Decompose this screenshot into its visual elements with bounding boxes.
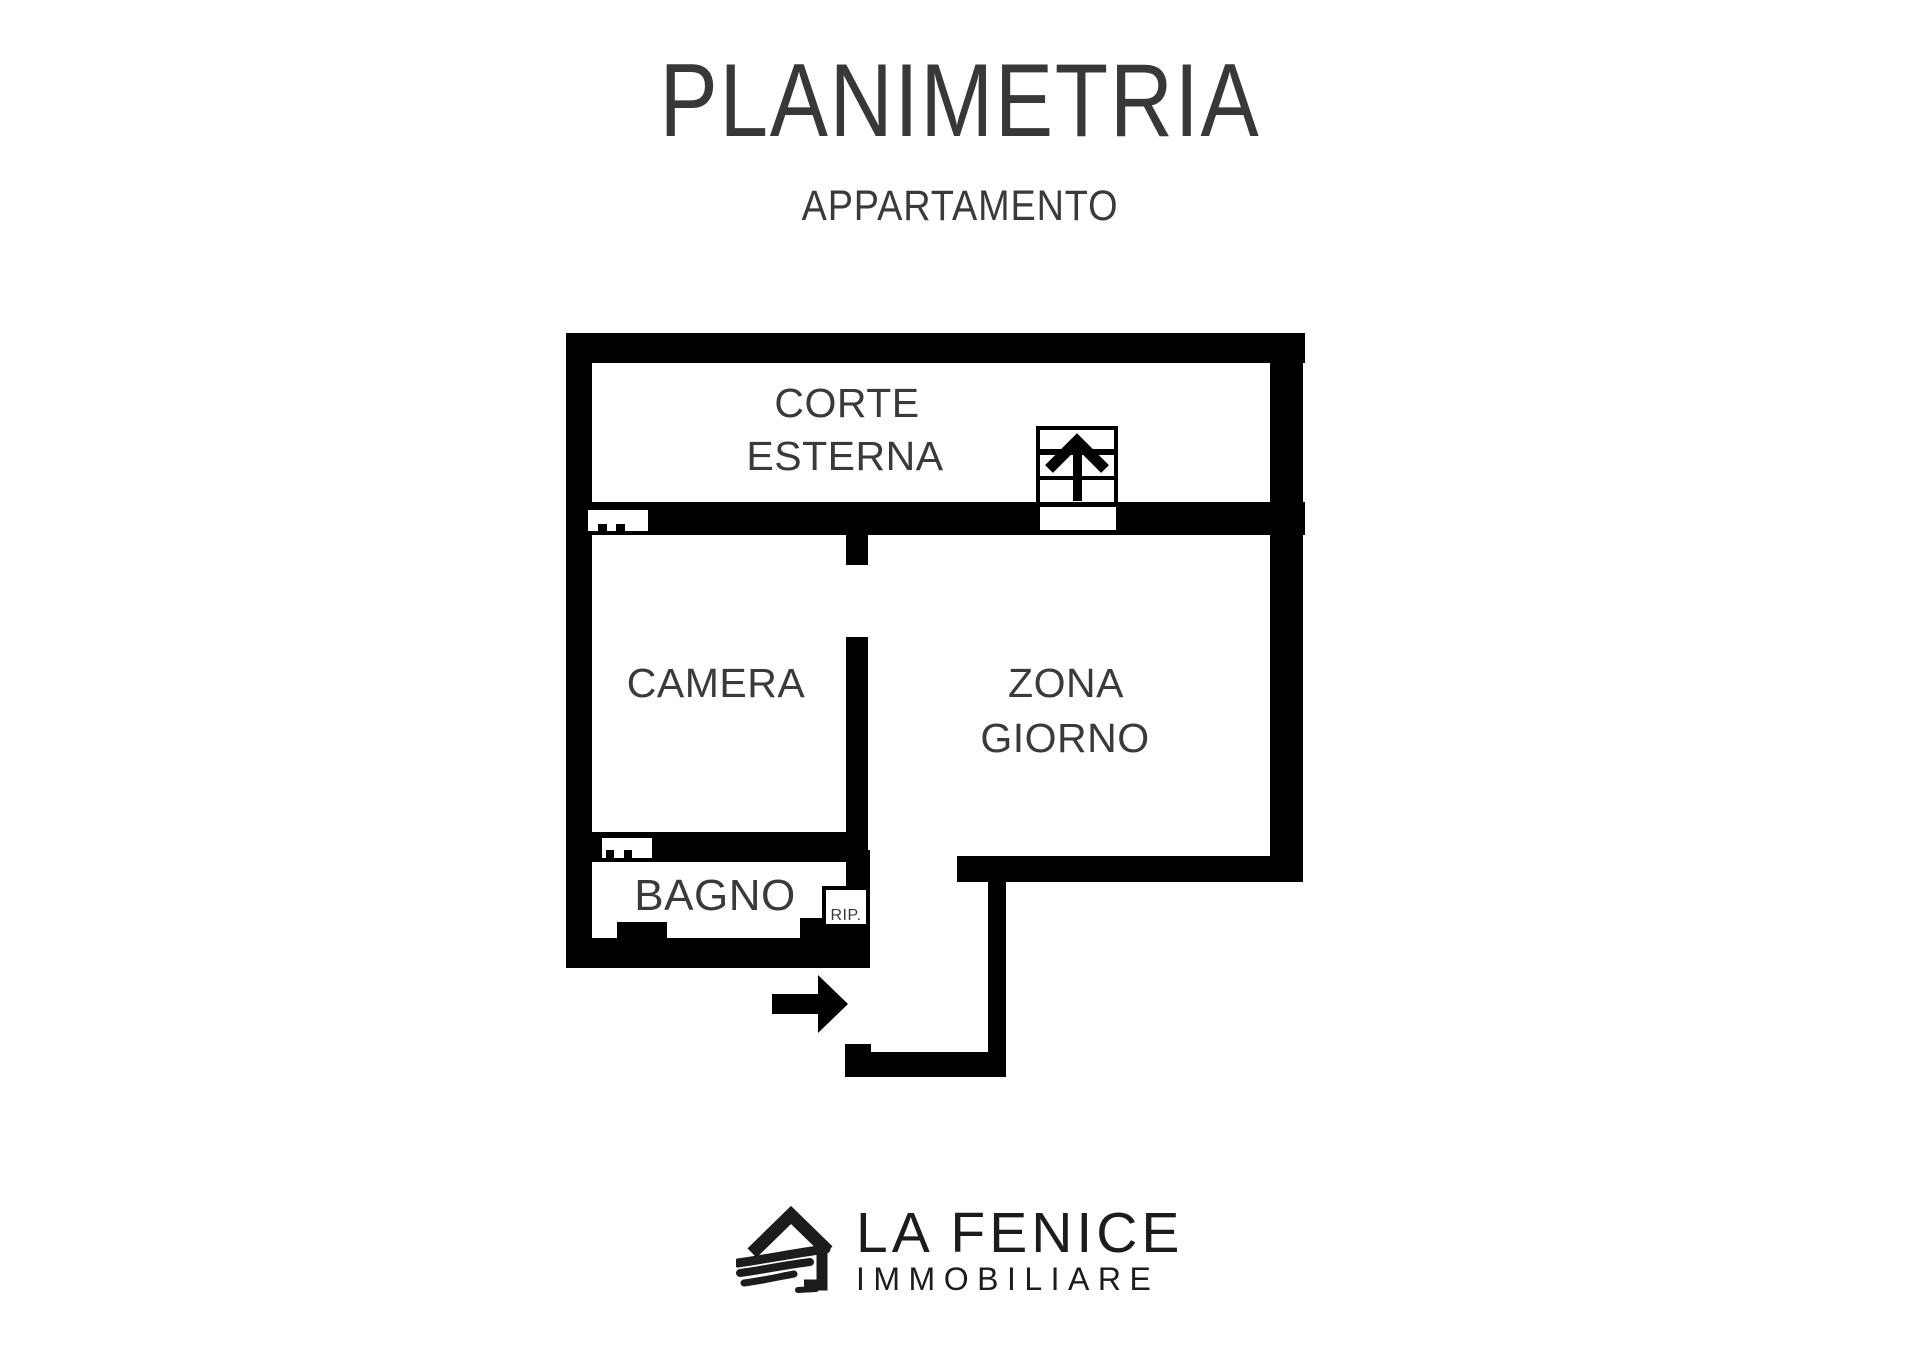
wall-entry-right — [988, 882, 1006, 1077]
room-label-camera: CAMERA — [627, 660, 806, 706]
house-wing-logo-icon — [736, 1203, 836, 1295]
wall-divider-main — [846, 637, 868, 850]
wall-divider-stub — [846, 535, 868, 565]
wall-right — [1270, 333, 1303, 882]
wall-zona-bottom — [957, 856, 1303, 882]
floor-plan-drawing: RIP. CORTE ESTERNA CAMERA ZONA GIORNO BA… — [0, 0, 1920, 1357]
entrance-arrow-icon — [772, 975, 848, 1033]
wall-bagno-jamb-a — [617, 922, 667, 938]
wall-entry-stub — [845, 1044, 871, 1054]
entrance-arrow-shaft — [772, 994, 820, 1014]
room-label-corte-line2: ESTERNA — [746, 433, 943, 479]
stairs-arrow-shaft — [1073, 444, 1082, 501]
stairs-up-arrow-icon — [1038, 428, 1116, 504]
room-label-zona-line1: ZONA — [1008, 660, 1124, 706]
room-label-corte-line1: CORTE — [774, 380, 919, 426]
wall-left — [566, 333, 592, 968]
door-opening-stairs — [1040, 507, 1116, 530]
wall-corte-bottom — [566, 502, 1305, 535]
rip-closet: RIP. — [824, 888, 868, 926]
door-tick — [624, 850, 632, 858]
wall-top — [566, 333, 1305, 363]
door-tick — [598, 524, 607, 531]
room-label-zona-line2: GIORNO — [980, 715, 1149, 761]
door-tick — [616, 524, 625, 531]
entrance-arrow-head — [818, 975, 848, 1033]
brand-name: LA FENICE — [856, 1204, 1183, 1262]
door-tick — [606, 850, 614, 858]
floor-plan-page: PLANIMETRIA APPARTAMENTO — [0, 0, 1920, 1357]
room-label-bagno: BAGNO — [634, 871, 795, 920]
room-label-rip: RIP. — [830, 907, 861, 924]
brand-text: LA FENICE IMMOBILIARE — [856, 1204, 1183, 1296]
wall-entry-bottom — [845, 1052, 1006, 1077]
brand-tagline: IMMOBILIARE — [856, 1262, 1183, 1296]
wall-bagno-bottom — [566, 938, 868, 968]
